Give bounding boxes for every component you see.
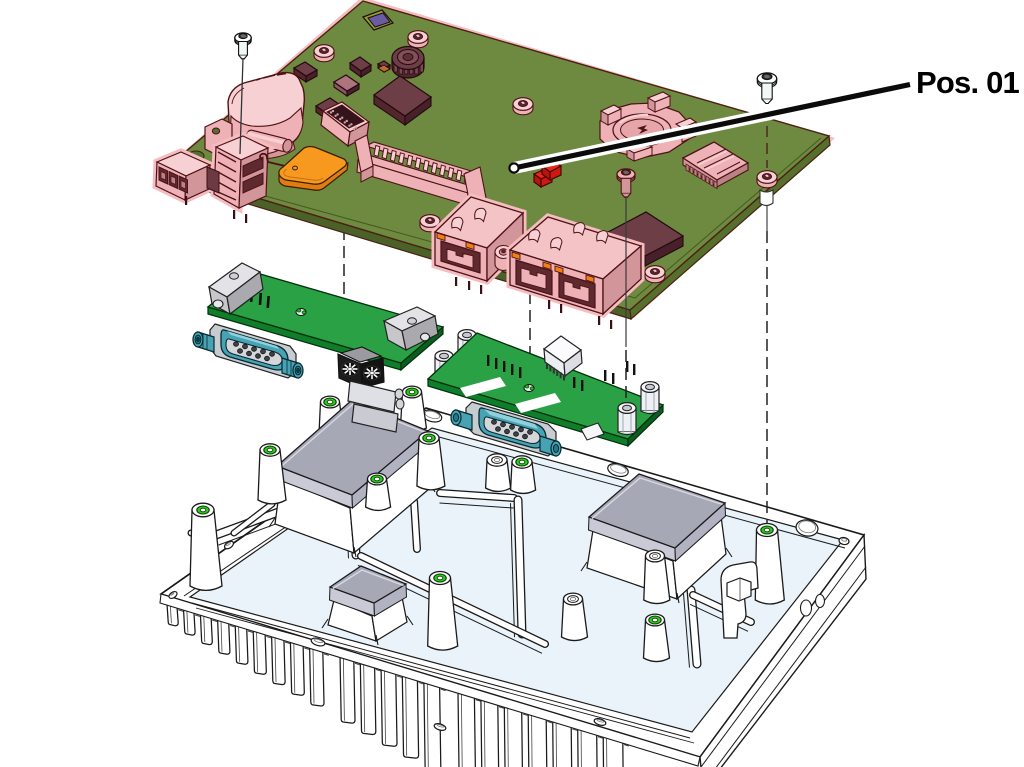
svg-text:Pos. 01: Pos. 01 bbox=[916, 65, 1020, 100]
